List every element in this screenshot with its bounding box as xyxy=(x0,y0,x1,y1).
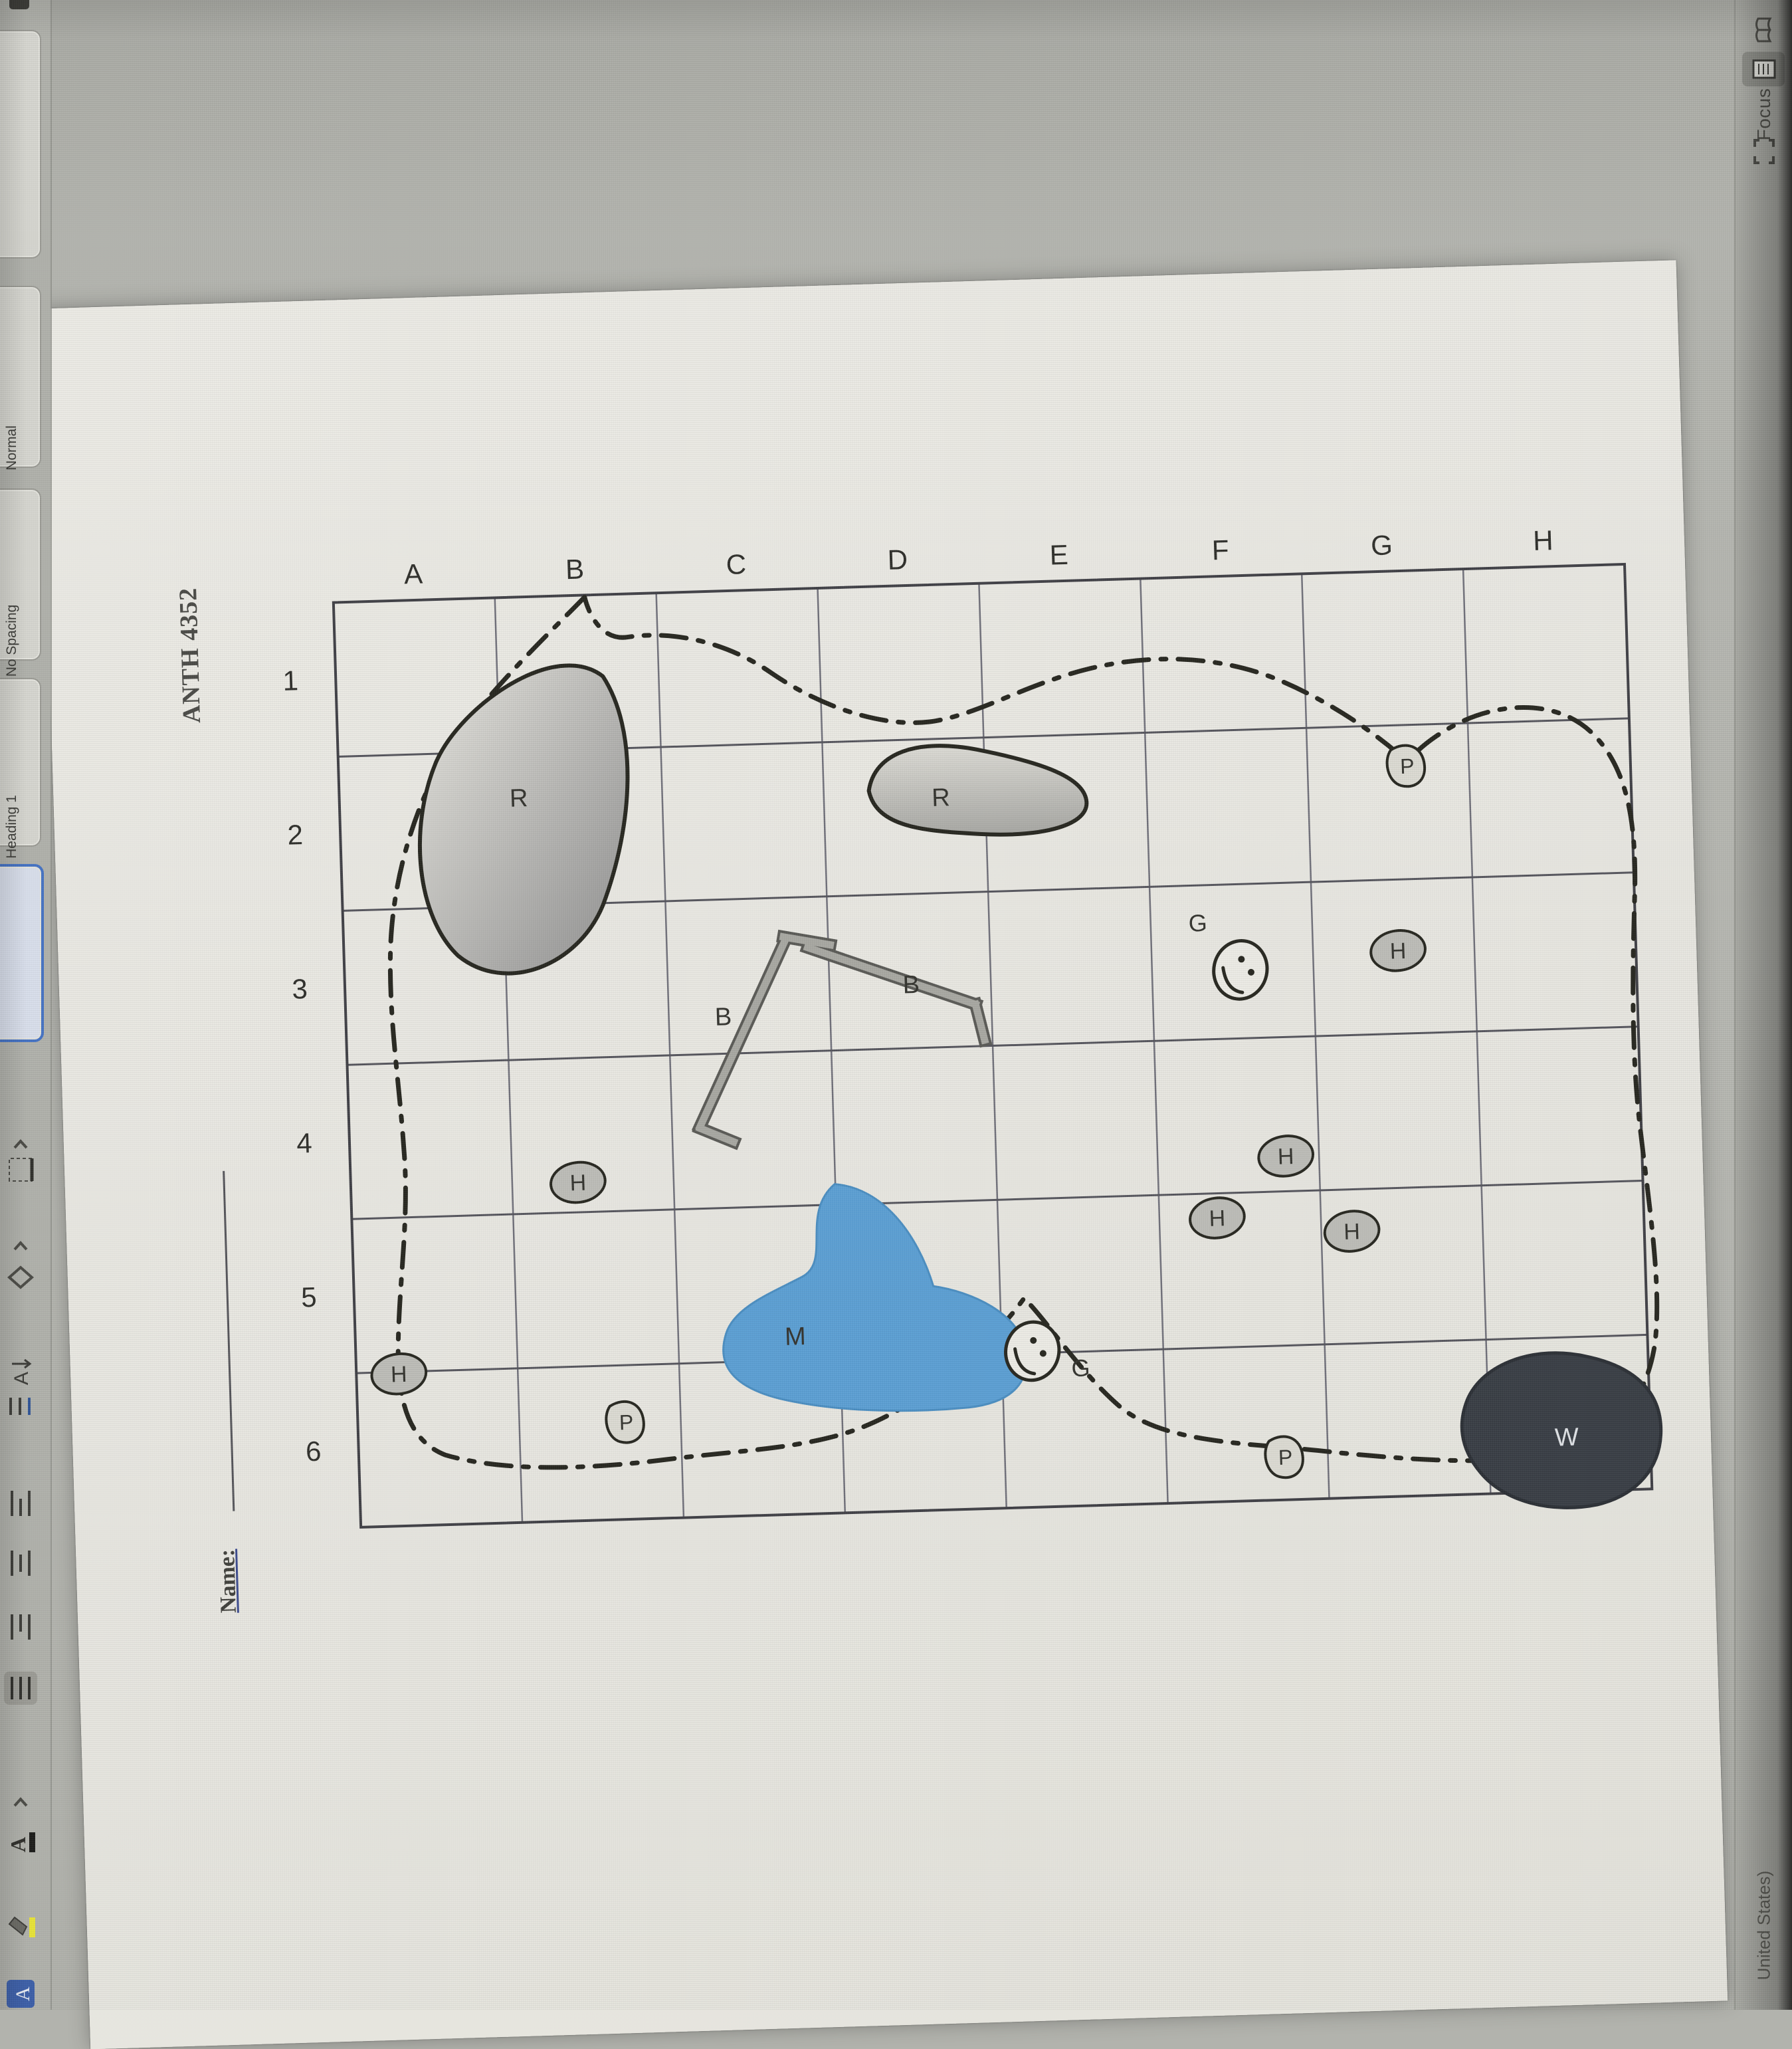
row-label: 5 xyxy=(300,1281,317,1313)
style-gallery-item[interactable] xyxy=(0,864,44,1042)
word-status-bar: Focus United States) xyxy=(1736,0,1792,2010)
pit-marker: P xyxy=(606,1401,645,1443)
rock-feature-1 xyxy=(415,664,633,976)
align-left-icon[interactable] xyxy=(3,1485,39,1521)
focus-button[interactable]: Focus xyxy=(1753,88,1775,141)
structure-walls xyxy=(694,931,987,1143)
font-color-icon[interactable]: A xyxy=(3,1824,39,1860)
marsh-marker: M xyxy=(784,1323,806,1351)
site-map: ABCDEFGH123456 xyxy=(39,260,1728,2049)
pit-label: P xyxy=(619,1410,633,1435)
chevron-icon[interactable] xyxy=(3,1228,39,1264)
print-layout-icon[interactable] xyxy=(1752,58,1776,80)
language-status[interactable]: United States) xyxy=(1753,1871,1774,1981)
structure-label: B xyxy=(902,971,920,1000)
toolbar-partial-icon xyxy=(9,0,29,9)
structure-marker: B xyxy=(902,971,920,1000)
row-label: 4 xyxy=(296,1127,313,1159)
toolbar-divider xyxy=(50,0,52,2010)
row-label: 3 xyxy=(292,973,308,1005)
row-label: 6 xyxy=(305,1436,322,1467)
style-gallery-label: No Spacing xyxy=(4,605,20,677)
well-label: W xyxy=(1554,1424,1579,1452)
shading-icon[interactable] xyxy=(3,1259,39,1295)
pit-label: P xyxy=(1278,1445,1292,1469)
smiley-label: G xyxy=(1071,1354,1090,1382)
structure-marker: B xyxy=(714,1003,732,1031)
rock-label: R xyxy=(509,784,528,813)
smiley-face xyxy=(1208,936,1272,1004)
column-label: A xyxy=(403,558,423,590)
smiley-label: G xyxy=(1188,909,1207,937)
highlight-icon[interactable] xyxy=(3,1909,39,1945)
column-label: G xyxy=(1370,529,1393,561)
rock-label: R xyxy=(932,784,951,812)
pit-label: P xyxy=(1400,754,1415,778)
hearth-marker: H xyxy=(1322,1208,1382,1255)
hearth-label: H xyxy=(1209,1206,1226,1232)
well-marker: W xyxy=(1554,1424,1579,1452)
hearth-label: H xyxy=(1389,938,1407,964)
styles-icon[interactable]: A xyxy=(3,1976,39,2012)
column-label: B xyxy=(565,553,584,585)
hearth-marker: H xyxy=(1187,1194,1247,1241)
align-right-icon[interactable] xyxy=(3,1609,39,1645)
hearth-label: H xyxy=(569,1170,587,1196)
chevron-icon[interactable] xyxy=(3,1784,39,1820)
rock-marker: R xyxy=(509,784,528,813)
style-gallery-item-normal[interactable]: Normal xyxy=(0,286,41,468)
style-gallery-item-no-spacing[interactable]: No Spacing xyxy=(0,488,41,661)
focus-frame-icon[interactable] xyxy=(1753,139,1775,164)
column-label: E xyxy=(1049,539,1068,571)
marsh-feature xyxy=(718,1178,1028,1416)
style-gallery-item[interactable] xyxy=(0,30,41,259)
hearth-marker: H xyxy=(548,1159,608,1206)
marsh-label: M xyxy=(784,1323,806,1351)
column-label: H xyxy=(1533,524,1554,556)
align-center-icon[interactable] xyxy=(3,1545,39,1581)
svg-text:A: A xyxy=(12,1987,34,2001)
photo-of-screen: NormalNo SpacingHeading 1 AAA ANTH 4352 … xyxy=(0,0,1792,2010)
word-left-toolbar: NormalNo SpacingHeading 1 AAA xyxy=(0,0,50,2010)
svg-text:A: A xyxy=(11,1372,33,1385)
style-gallery-label: Heading 1 xyxy=(4,795,20,859)
column-label: D xyxy=(887,544,908,576)
hearth-marker: H xyxy=(1256,1132,1316,1180)
hearth-marker: H xyxy=(369,1350,429,1398)
structure-label: B xyxy=(714,1003,732,1031)
pit-marker: P xyxy=(1265,1436,1304,1478)
hearth-marker: H xyxy=(1368,927,1428,974)
column-label: C xyxy=(726,548,747,580)
row-label: 1 xyxy=(282,665,299,697)
document-page[interactable]: ANTH 4352 Name: ABCDEFGH123456 xyxy=(39,260,1728,2049)
hearth-label: H xyxy=(1344,1219,1361,1245)
style-gallery-item-heading-1[interactable]: Heading 1 xyxy=(0,678,41,847)
rock-marker: R xyxy=(932,784,951,812)
sort-icon[interactable]: A xyxy=(3,1354,39,1390)
hearth-label: H xyxy=(1277,1144,1294,1170)
hearth-label: H xyxy=(391,1362,408,1388)
borders-icon[interactable] xyxy=(3,1152,39,1188)
pit-marker: P xyxy=(1387,745,1425,787)
rock-feature-2 xyxy=(868,742,1088,839)
line-spacing-icon[interactable] xyxy=(3,1392,39,1428)
smiley-marker: G xyxy=(1188,907,1274,1006)
row-label: 2 xyxy=(287,819,304,851)
read-mode-icon[interactable] xyxy=(1754,17,1774,43)
column-label: F xyxy=(1211,534,1229,566)
style-gallery-label: Normal xyxy=(4,425,20,471)
justify-icon[interactable] xyxy=(3,1670,39,1706)
svg-text:A: A xyxy=(6,1837,30,1852)
